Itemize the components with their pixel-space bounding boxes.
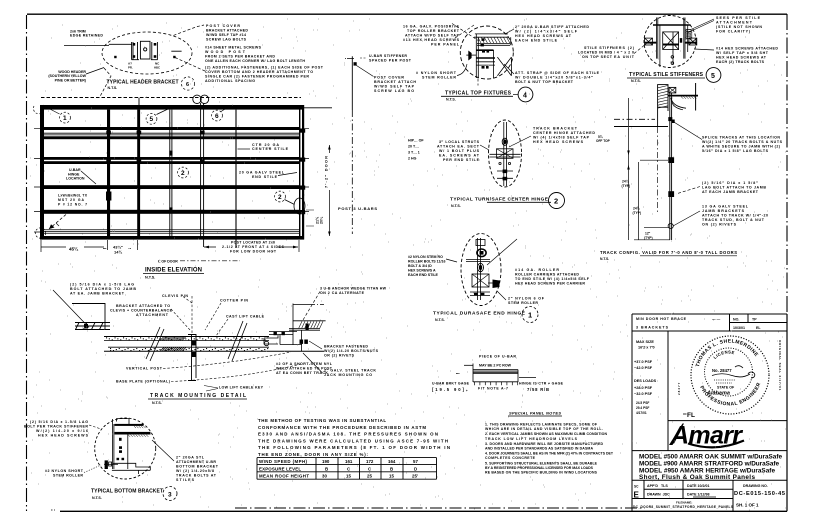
svg-text:TO END STILE W/ (4) 1/4x5/8 SE: TO END STILE W/ (4) 1/4x5/8 SELF [515,277,590,281]
svg-text:LOCATION: LOCATION [66,177,85,181]
svg-text:45¼: 45¼ [69,246,79,252]
svg-text:ATTACHMENT: ATTACHMENT [716,21,753,25]
svg-text:BOLT PER TRACK STIFFENER: BOLT PER TRACK STIFFENER [24,425,88,429]
svg-text:30: 30 [322,474,327,479]
svg-text:OR (2) RIVETS: OR (2) RIVETS [324,354,355,358]
svg-text:PINE OR BETTER): PINE OR BETTER) [55,78,87,82]
svg-text:3 T… 1: 3 T… 1 [408,151,420,155]
svg-text:DATE 1/12/98: DATE 1/12/98 [687,493,710,497]
svg-text:COMPLETES CONCRETE: COMPLETES CONCRETE [485,456,536,460]
svg-text:N.T.S.: N.T.S. [631,79,641,83]
svg-text:MIN DOOR HGT BRACE: MIN DOOR HGT BRACE [636,317,687,321]
svg-text:4. DOOR JOURNEYS SHALL BE AS I: 4. DOOR JOURNEYS SHALL BE AS IN THE MFR … [485,452,614,456]
svg-text:FROM 2 SETS PER BRACKET AND: FROM 2 SETS PER BRACKET AND [205,55,275,59]
svg-text:15: 15 [389,474,394,479]
svg-text:HEX HEAD SCREWS AT: HEX HEAD SCREWS AT [716,56,767,60]
svg-text:COTTER PIN: COTTER PIN [220,299,248,303]
svg-text:BRACKET FASTENED: BRACKET FASTENED [324,345,368,349]
svg-text:STEM ROLLER: STEM ROLLER [508,301,538,305]
svg-text:−32.0 PSF: −32.0 PSF [634,392,653,396]
svg-text:THE FOLLOWING PARAMETERS (8 FT: THE FOLLOWING PARAMETERS (8 FT. 1 OF DOO… [258,445,450,450]
svg-text:LOW LIFT CABLE KEY: LOW LIFT CABLE KEY [219,386,264,390]
svg-text:EACH (2) TRACK BOLTS: EACH (2) TRACK BOLTS [716,60,765,64]
svg-text:BOLT ATTACHED TO JAMB: BOLT ATTACHED TO JAMB [70,287,136,291]
svg-text:#14 HEX HEAD SCREWS: #14 HEX HEAD SCREWS [403,38,460,42]
svg-text:MAY BE 2 PC ROW: MAY BE 2 PC ROW [479,364,512,368]
svg-text:BY A REGISTERED PROFESSIONAL L: BY A REGISTERED PROFESSIONAL LICENSED FO… [485,466,594,470]
svg-text:B: B [390,466,393,471]
svg-text:COVER BOTTOM AND 2 HEADER ATTA: COVER BOTTOM AND 2 HEADER ATTACHMENT TO [205,70,313,74]
svg-text:MODEL #900 AMARR STRATFORD w/D: MODEL #900 AMARR STRATFORD w/DuraSafe [639,461,779,468]
svg-text:TRACK MOUNTING DETAIL: TRACK MOUNTING DETAIL [150,393,246,399]
svg-text:E: E [634,491,640,500]
svg-text:RE BASED ON THE SPECIFIC BUILD: RE BASED ON THE SPECIFIC BUILDING IN WIN… [485,470,598,474]
svg-text:HEX HEAD SCREWS: HEX HEAD SCREWS [533,140,584,144]
svg-text:2: 2 [181,170,185,177]
svg-text:# NYLON SHORT: # NYLON SHORT [416,71,457,75]
svg-text:AND INSTALLED PER STANDARDS AS: AND INSTALLED PER STANDARDS AS SATISFIED… [485,446,593,450]
svg-text:HEX HEAD SCREWS PER CARRIER: HEX HEAD SCREWS PER CARRIER [515,282,585,286]
svg-text:TYPICAL STILE STIFFENERS: TYPICAL STILE STIFFENERS [629,72,704,78]
svg-text:ORIGINAL SEAL 4/17/01: ORIGINAL SEAL 4/17/01 [778,340,782,391]
svg-text:MAX SIZE: MAX SIZE [636,340,654,344]
svg-text:JACK MOUNTING CO: JACK MOUNTING CO [324,373,372,377]
svg-text:EA UNIT: EA UNIT [614,55,635,59]
svg-text:164: 164 [388,459,396,464]
svg-text:EA. SCREWS AT: EA. SCREWS AT [439,154,480,158]
svg-text:HIP… OF: HIP… OF [408,139,424,143]
svg-text:CTR 20 GA: CTR 20 GA [252,143,279,147]
svg-text:2. EACH VERTICAL JAMBS SHOWN A: 2. EACH VERTICAL JAMBS SHOWN AS MAXIMUM … [485,432,607,436]
svg-text:#2 OF A SHORT-STEM NYL: #2 OF A SHORT-STEM NYL [276,362,333,366]
svg-text:ROLLER CARRIERS ATTACHED: ROLLER CARRIERS ATTACHED [515,273,579,277]
svg-text:FOR CLARITY): FOR CLARITY) [716,30,751,34]
svg-text:DC_DOOR8_SUMMIT_STRATFORD_HERI: DC_DOOR8_SUMMIT_STRATFORD_HERITAGE_PANEL… [633,505,733,509]
svg-text:A WHITE SECURE TO JAMB WITH (2: A WHITE SECURE TO JAMB WITH (2) [702,145,781,149]
svg-text:24.5 PSF: 24.5 PSF [636,401,649,405]
svg-text:20 GA GALV STEEL: 20 GA GALV STEEL [239,171,285,175]
svg-text:5. SUPPORTING STRUCTURAL ELEME: 5. SUPPORTING STRUCTURAL ELEMENTS SHALL … [485,461,598,465]
svg-text:TP: TP [752,318,757,322]
svg-text:No. 28477: No. 28477 [712,368,732,373]
svg-text:10/3/01: 10/3/01 [733,326,745,330]
svg-text:16′2 x 7′0: 16′2 x 7′0 [638,346,655,350]
svg-text:−42.0 PSF: −42.0 PSF [634,366,653,370]
svg-text:HEX SCREWS A: HEX SCREWS A [408,269,436,273]
svg-text:ATTACHMENT U-BR: ATTACHMENT U-BR [176,460,216,464]
svg-text:16 GA. GALV. POSIDRIVE: 16 GA. GALV. POSIDRIVE [403,24,460,28]
svg-text:N.T.S.: N.T.S. [446,98,456,102]
svg-text:N.T.S.: N.T.S. [600,257,609,261]
svg-text:SPACED PER POST: SPACED PER POST [369,58,412,62]
svg-text:AT EA CONN BET TRACK: AT EA CONN BET TRACK [276,371,328,375]
svg-text:15: 15 [346,474,351,479]
svg-text:190: 190 [322,459,330,464]
svg-text:(TYP): (TYP) [644,236,653,240]
svg-text:POST 3 U-BARS: POST 3 U-BARS [338,206,377,211]
svg-text:FIT NOTE A-7: FIT NOTE A-7 [478,387,508,391]
svg-text:TRACK LOW LIFT HEADROOM LEVELS: TRACK LOW LIFT HEADROOM LEVELS [485,437,578,441]
svg-text:4/17/01: 4/17/01 [636,411,647,415]
svg-text:ON 2 CA ALTERNATE: ON 2 CA ALTERNATE [320,291,365,295]
svg-text:3 BRACKETS: 3 BRACKETS [636,326,669,330]
svg-text:AT EACH JAMB BRACKET: AT EACH JAMB BRACKET [702,190,759,194]
svg-text:TOP ROLLER BRACKET: TOP ROLLER BRACKET [407,29,460,33]
svg-text:2″ NYLON 6 OF: 2″ NYLON 6 OF [508,297,545,301]
svg-text:PER PANEL: PER PANEL [431,42,460,46]
svg-text:ON TOP SECT: ON TOP SECT [582,55,613,59]
svg-text:3: 3 [168,491,172,498]
svg-text:14¾: 14¾ [114,249,122,254]
svg-text:NERS (2): NERS (2) [612,46,635,50]
svg-text:ATT. STRAP @ SIDE OF EACH STIL: ATT. STRAP @ SIDE OF EACH STILE [515,71,600,75]
svg-text:+28.0 PSF: +28.0 PSF [634,386,653,390]
svg-text:W/(2) 1/4″ 20 TRACK BOLTS & NU: W/(2) 1/4″ 20 TRACK BOLTS & NUTS [702,140,783,144]
svg-text:EACH END STILE: EACH END STILE [515,39,558,43]
svg-text:25′: 25′ [412,474,418,479]
svg-text:THE DRAWINGS WERE CALCULATED U: THE DRAWINGS WERE CALCULATED USING ASCE … [258,438,448,443]
svg-text:LxWxBxWdL TX: LxWxBxWdL TX [58,194,88,198]
svg-text:MODEL #500 AMARR OAK SUMMIT w/: MODEL #500 AMARR OAK SUMMIT w/DuraSafe [639,454,782,461]
svg-text:Alabama: Alabama [706,391,730,397]
svg-text:2: 2 [554,197,558,206]
svg-text:(STILE NOT SHOWN: (STILE NOT SHOWN [716,25,762,29]
svg-text:HBC: HBC [154,65,160,69]
svg-text:APP’D TLS: APP’D TLS [647,484,668,488]
svg-text:DATE 10/2/01: DATE 10/2/01 [687,484,710,488]
svg-text:END STILE: END STILE [252,175,278,179]
svg-text:CENTER STILE: CENTER STILE [252,147,289,151]
svg-text:ATTACH W/PD SELF TAP: ATTACH W/PD SELF TAP [405,33,460,37]
svg-text:D: D [414,466,417,471]
svg-text:MEAN ROOF HEIGHT: MEAN ROOF HEIGHT [259,474,309,479]
svg-text:PR.: PR. [128,65,133,69]
svg-text:SINGLE CAR (2) FASTENER PROGRA: SINGLE CAR (2) FASTENER PROGRAMMED PER [205,75,309,79]
svg-text:N.T.S.: N.T.S. [108,86,118,90]
svg-text:STILES: STILES [176,478,195,482]
svg-text:WOOD POST: WOOD POST [205,50,246,54]
svg-text:ADDITIONAL SPACING: ADDITIONAL SPACING [205,79,255,83]
svg-text:2″ 20GA STL: 2″ 20GA STL [176,456,205,460]
svg-text:POST LOCATED AT 2x6: POST LOCATED AT 2x6 [231,241,275,245]
svg-text:TYPICAL DURASAFE END HINGE: TYPICAL DURASAFE END HINGE [433,311,526,317]
svg-text:13 GA GALV STEEL: 13 GA GALV STEEL [702,205,749,209]
svg-text:EACH END STILE: EACH END STILE [408,273,439,277]
svg-text:TYPICAL BOTTOM BRACKET: TYPICAL BOTTOM BRACKET [91,489,163,495]
svg-text:1: 1 [528,311,532,320]
svg-text:TYPICAL HEADER BRACKET: TYPICAL HEADER BRACKET [107,80,179,86]
svg-text:W/ SELF TAP x 5/8 SHT: W/ SELF TAP x 5/8 SHT [716,51,769,55]
svg-text:57: 57 [413,459,418,464]
svg-text:STILE STIFF: STILE STIFF [584,46,613,50]
svg-text:25: 25 [367,474,372,479]
svg-text:TYPICAL TURN/SAFE CENTER HI: TYPICAL TURN/SAFE CENTER HINGE [450,197,549,203]
svg-text:2-1/2 AT FRONT AT 4 SIDES: 2-1/2 AT FRONT AT 4 SIDES [222,245,285,249]
svg-text:ROLLER BOLTS 11/16: ROLLER BOLTS 11/16 [408,260,445,264]
svg-text:6: 6 [215,113,219,120]
svg-text:THE METHOD OF TESTING WAS IN S: THE METHOD OF TESTING WAS IN SUBSTANTIAL [258,418,386,423]
svg-text:JAMB BRACKETS: JAMB BRACKETS [702,209,745,213]
svg-text:STEM ROLLER: STEM ROLLER [422,76,456,80]
svg-text:ATTACH EA. SECT: ATTACH EA. SECT [437,145,480,149]
svg-text:ATTACHMENT: ATTACHMENT [136,313,169,317]
svg-text:STATE OF: STATE OF [717,386,735,390]
svg-text:CENTER HINGE ATTACHED: CENTER HINGE ATTACHED [533,131,595,135]
svg-text:DES LOADS: DES LOADS [634,379,657,383]
svg-text:SC: SC [634,485,639,489]
svg-text:2 HG: 2 HG [408,157,417,161]
svg-text:#14 SHEET METAL SCREWS: #14 SHEET METAL SCREWS [205,46,262,50]
svg-text:20 T…: 20 T… [408,145,419,149]
svg-text:SCREW LAG BOLTS: SCREW LAG BOLTS [206,38,247,42]
svg-text:BASE PLATE (OPTIONAL): BASE PLATE (OPTIONAL) [116,380,171,384]
svg-text:W/ (2) 1/4″x3/4″ SELF: W/ (2) 1/4″x3/4″ SELF [515,30,578,34]
svg-text:PER END STILE: PER END STILE [443,158,480,162]
svg-text:#2 NYLON SHORT: #2 NYLON SHORT [45,469,84,473]
svg-text:29.4 PSF: 29.4 PSF [636,406,649,410]
svg-text:BRACKET ATTACH: BRACKET ATTACH [374,80,416,84]
svg-text:1. THIS DRAWING REFLECTS LAMIN: 1. THIS DRAWING REFLECTS LAMINATE SPECS,… [485,422,598,426]
svg-text:W/ DOUBLE 1/4″x20 5/8″x1-3/4″: W/ DOUBLE 1/4″x20 5/8″x1-3/4″ [515,76,593,80]
svg-text:W/ (2) 1/4-20x5/8: W/ (2) 1/4-20x5/8 [176,469,214,473]
svg-text:N.T.S.: N.T.S. [451,204,461,208]
svg-text:ON (2) RIVETS: ON (2) RIVETS [702,223,737,227]
svg-text:HEX HEAD SCREWS AT: HEX HEAD SCREWS AT [515,34,572,38]
svg-text:ℂ OF DOOR: ℂ OF DOOR [158,259,178,264]
svg-text:WIND SPEED (MPH): WIND SPEED (MPH) [259,459,308,464]
svg-text:EDGE RETAINED: EDGE RETAINED [70,34,103,38]
svg-text:FOR LOW DOOR HGT: FOR LOW DOOR HGT [230,249,277,253]
svg-text:7′-2″ DOOR: 7′-2″ DOOR [324,156,328,188]
svg-text:1: 1 [63,115,67,122]
svg-text:28477: 28477 [677,382,681,395]
svg-text:CONFORMANCE WITH THE PROCEDURE: CONFORMANCE WITH THE PROCEDURE DESCRIBED… [258,425,426,430]
svg-text:172: 172 [366,459,374,464]
svg-text:U-BAR BRKT GAGE: U-BAR BRKT GAGE [432,382,470,386]
svg-text:FL: FL [687,412,695,419]
svg-text:AT EA. JAMB BRACKET: AT EA. JAMB BRACKET [70,292,125,296]
svg-text:BOLT & NUT TOP BRACKET: BOLT & NUT TOP BRACKET [515,80,574,84]
svg-text:7/58 R/B: 7/58 R/B [527,387,549,392]
svg-text:MST 20 GA: MST 20 GA [58,198,85,202]
svg-text:ONE ALLEN EACH CORNER W/ LAG B: ONE ALLEN EACH CORNER W/ LAG BOLT LENGTH [205,59,305,63]
svg-text:W/(2) 1/4-20 x 9/16: W/(2) 1/4-20 x 9/16 [36,429,88,433]
svg-text:3″ LOCAL STRUTS: 3″ LOCAL STRUTS [439,140,480,144]
svg-text:P # 12 NO. 7: P # 12 NO. 7 [58,203,87,207]
svg-text:TRACK STUD, BOLT & NUT: TRACK STUD, BOLT & NUT [702,218,765,222]
svg-text:HINGE IS CTR + GAGE: HINGE IS CTR + GAGE [519,382,564,386]
svg-text:(TYP): (TYP) [622,184,631,188]
svg-text:WELD ATTACH ED TO POST: WELD ATTACH ED TO POST [276,367,333,371]
svg-text:VERTICAL POST: VERTICAL POST [126,367,163,371]
svg-text:4: 4 [523,92,527,99]
svg-text:INSIDE ELEVATION: INSIDE ELEVATION [145,268,202,274]
svg-text:OFF TOP: OFF TOP [596,139,611,143]
svg-text:N.T.S.: N.T.S. [145,276,155,280]
svg-text:TRACK CONFIG. VALID FOR 7′-0 A: TRACK CONFIG. VALID FOR 7′-0 AND 8′-0 TA… [600,250,737,255]
svg-text:(2) 5/16 DIA x 1-5/8 LAG: (2) 5/16 DIA x 1-5/8 LAG [70,283,134,287]
svg-text:+37.0 PSF: +37.0 PSF [634,360,653,364]
svg-text:N.T.S.: N.T.S. [152,401,162,405]
svg-text:W/WD SELF TAP: W/WD SELF TAP [374,85,415,89]
svg-text:(2) 5/16 DIA x 1-5/8 LAG: (2) 5/16 DIA x 1-5/8 LAG [30,420,88,424]
svg-text:EXPOSURE LEVEL: EXPOSURE LEVEL [259,466,301,471]
svg-text:WHICH ARE IN DETAIL AND VISIBL: WHICH ARE IN DETAIL AND VISIBLE TOP OF T… [485,427,603,431]
svg-text:TRACK BOLTS AT: TRACK BOLTS AT [176,474,217,478]
svg-text:SH. 1 OF 1: SH. 1 OF 1 [736,503,759,508]
svg-text:LOCATED IN MID: LOCATED IN MID [578,51,612,55]
svg-text:DC-E015-150-45: DC-E015-150-45 [734,491,785,497]
svg-text:SPLICE TRACKS AT THIS LOCATION: SPLICE TRACKS AT THIS LOCATION [702,136,780,140]
svg-text:NO.: NO. [733,318,739,322]
svg-text:PIECE OF U-BAR: PIECE OF U-BAR [479,355,516,359]
svg-text:5: 5 [711,73,715,80]
svg-text:B: B [325,466,328,471]
svg-text:#14 HEX SCREWS ATTACHED: #14 HEX SCREWS ATTACHED [716,47,778,51]
svg-text:5: 5 [150,116,154,123]
svg-text:SCREW LAG BO: SCREW LAG BO [374,89,414,93]
svg-text:POST COVER: POST COVER [374,76,404,80]
svg-text:(TYP): (TYP) [633,211,642,215]
svg-text:161: 161 [345,459,353,464]
svg-text:N.T.S.: N.T.S. [92,496,102,500]
svg-text:TYPICAL TOP FIXTURES: TYPICAL TOP FIXTURES [445,91,512,97]
svg-text:SPECIAL PANEL NOTES: SPECIAL PANEL NOTES [509,411,561,416]
svg-text:BRACKET ATTACHED TO: BRACKET ATTACHED TO [116,304,170,308]
svg-text:BOTTOM BRACKET: BOTTOM BRACKET [176,465,219,469]
svg-text:POST COVER: POST COVER [206,24,240,28]
svg-text:HEX HEAD SCREWS: HEX HEAD SCREWS [38,434,89,438]
svg-text:6: 6 [186,82,189,88]
svg-text:(2) 5/16″ DIA x 1 5/8″: (2) 5/16″ DIA x 1 5/8″ [702,181,758,185]
svg-text:BRACKET ATTACHED: BRACKET ATTACHED [206,29,248,33]
svg-text:20⅛: 20⅛ [320,216,324,224]
svg-text:W/ (4) 1/4x5/8 SELF TAP: W/ (4) 1/4x5/8 SELF TAP [533,136,590,140]
svg-text:#14 GA. ROLLER: #14 GA. ROLLER [515,268,559,272]
svg-text:CLEVIS + COUNTERBALANCE: CLEVIS + COUNTERBALANCE [110,309,173,313]
svg-text:THE END ZONE, DOOR IN ANY SIZE: THE END ZONE, DOOR IN ANY SIZE %): [258,452,369,457]
svg-text:LAG BOLT ATTACH TO JAMB: LAG BOLT ATTACH TO JAMB [702,186,766,190]
svg-text:STEM ROLLER: STEM ROLLER [53,474,83,478]
svg-text:EL: EL [756,326,761,330]
svg-text:DRAWING NO.: DRAWING NO. [743,484,768,488]
svg-text:E330 AND ANSI/DASMA 108. THE P: E330 AND ANSI/DASMA 108. THE PRESSURES S… [258,432,438,437]
svg-text:#2 NYLON STEM RO: #2 NYLON STEM RO [408,255,443,259]
svg-text:3 U-B ANCHOR WEDGE TITAN HW: 3 U-B ANCHOR WEDGE TITAN HW [320,287,387,291]
svg-text:W/WD SELF TAP #14: W/WD SELF TAP #14 [206,33,246,37]
svg-text:CAST LIFT CABLE: CAST LIFT CABLE [226,315,265,319]
svg-text:2″ 20GA U-BAR STIFF ATTACHED: 2″ 20GA U-BAR STIFF ATTACHED [515,25,589,29]
svg-text:N.T.S.: N.T.S. [435,318,445,322]
svg-text:DRAWN JDC: DRAWN JDC [647,493,670,497]
svg-text:Short, Flush & Oak Summit Pane: Short, Flush & Oak Summit Panels [639,474,755,481]
svg-text:ATTACH TO TRACK W/ 1/4″-20: ATTACH TO TRACK W/ 1/4″-20 [702,214,768,218]
svg-text:3. DOORS AND HARDWARE WILL BE: 3. DOORS AND HARDWARE WILL BE JOBSITE MA… [485,442,603,446]
svg-text:2: 2 [278,194,282,201]
svg-text:W/ 1 BOLT PLUS: W/ 1 BOLT PLUS [439,149,480,153]
svg-text:5/16″ DIA x 1 5/8″ LAG BOLTS: 5/16″ DIA x 1 5/8″ LAG BOLTS [702,149,769,153]
svg-text:(2) ADDITIONAL FASTENERS, (1): (2) ADDITIONAL FASTENERS, (1) EACH SIDE … [205,66,324,70]
